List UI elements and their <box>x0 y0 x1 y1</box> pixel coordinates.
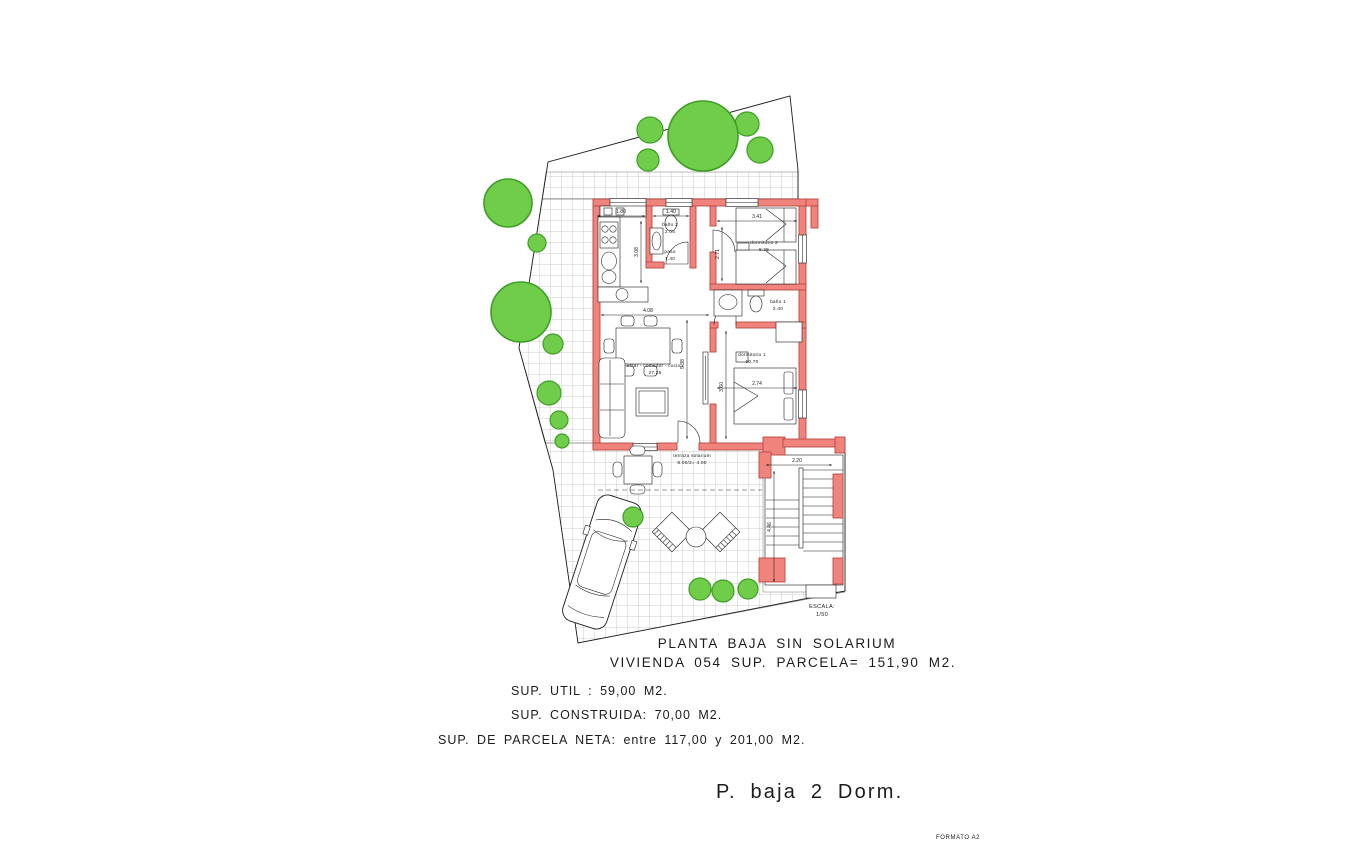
room-label-terrace: terraza solarium <box>673 453 711 459</box>
dim-dorm2-width: 3.41 <box>752 214 762 220</box>
room-area-bath2: 2.05 <box>665 229 675 235</box>
dim-stair-depth: 4.46 <box>767 522 773 532</box>
tree-icon <box>637 117 663 143</box>
dim-living-width: 4.08 <box>643 308 653 314</box>
dim-kitchen-width: 1.80 <box>616 209 626 215</box>
patio-table-icon <box>624 456 652 484</box>
dim-dorm1-depth: 3.60 <box>719 382 725 392</box>
bush-icon <box>689 578 711 600</box>
bush-icon <box>623 507 643 527</box>
room-label-dorm1: dormitorio 1 <box>738 352 766 358</box>
tree-icon <box>484 179 532 227</box>
scale-label: ESCALA: <box>809 604 835 610</box>
side-table-icon <box>686 527 706 547</box>
dim-dorm2-depth: 2.71 <box>715 249 721 259</box>
plan-subtitle: VIVIENDA 054 SUP. PARCELA= 151,90 M2. <box>610 655 956 670</box>
area-summary: SUP. UTIL : 59,00 M2. SUP. CONSTRUIDA: 7… <box>438 684 805 747</box>
coffee-table-icon <box>636 388 668 416</box>
sheet-name: P. baja 2 Dorm. <box>716 781 903 803</box>
sheet-format: FORMATO A2 <box>936 835 980 841</box>
tree-icon <box>747 137 773 163</box>
sofa-icon <box>599 358 625 438</box>
bush-icon <box>528 234 546 252</box>
bed-icon <box>736 208 796 242</box>
room-label-paso: paso <box>664 250 675 255</box>
tree-icon <box>637 149 659 171</box>
plan-title: PLANTA BAJA SIN SOLARIUM <box>658 636 896 651</box>
floor-plan-sheet: 1.80 1.40 3.41 3.08 2.71 4.08 5.38 2.74 … <box>0 0 1360 850</box>
stair-landing <box>806 585 836 598</box>
bush-icon <box>543 334 563 354</box>
room-area-living: 27.25 <box>648 370 661 376</box>
bed-icon <box>736 250 796 284</box>
stove-icon <box>600 222 618 248</box>
room-label-dorm2: dormitorio 2 <box>750 240 778 246</box>
bush-icon <box>550 411 568 429</box>
room-area-paso: 1.40 <box>665 256 675 262</box>
bush-icon <box>738 579 758 599</box>
sup-construida: SUP. CONSTRUIDA: 70,00 M2. <box>511 708 722 722</box>
scale-value: 1/50 <box>816 612 828 618</box>
title-block: PLANTA BAJA SIN SOLARIUM VIVIENDA 054 SU… <box>610 636 956 670</box>
room-label-bath1: baño 1 <box>770 299 786 305</box>
dim-dorm1-width: 2.74 <box>752 381 762 387</box>
tree-icon <box>668 101 738 171</box>
sup-util: SUP. UTIL : 59,00 M2. <box>511 684 668 698</box>
room-area-terrace: 8.00/2= 4.00 <box>677 460 706 466</box>
bush-icon <box>537 381 561 405</box>
toilet-icon <box>748 290 764 296</box>
room-area-dorm1: 10.70 <box>745 359 758 365</box>
room-label-bath2: baño 2 <box>662 222 678 228</box>
room-label-living: estar - comedor - cocina <box>627 363 684 369</box>
tree-icon <box>491 282 551 342</box>
scale-note: ESCALA: 1/50 <box>809 604 835 618</box>
wardrobe-icon <box>776 322 802 342</box>
washbasin-icon <box>714 290 742 316</box>
dining-table-icon <box>616 328 670 364</box>
floor-plan-drawing: 1.80 1.40 3.41 3.08 2.71 4.08 5.38 2.74 … <box>0 0 1360 850</box>
dim-bath2-width: 1.40 <box>666 209 676 215</box>
dim-stair-width: 2.20 <box>792 458 802 464</box>
nightstand-icon <box>737 243 749 250</box>
room-area-dorm2: 8.25 <box>759 247 769 253</box>
bush-icon <box>555 434 569 448</box>
room-area-bath1: 2.40 <box>773 306 783 312</box>
bath1-fixtures <box>714 290 764 316</box>
dim-kitchen-depth: 3.08 <box>634 247 640 257</box>
sup-parcela-neta: SUP. DE PARCELA NETA: entre 117,00 y 201… <box>438 733 805 747</box>
bush-icon <box>712 580 734 602</box>
